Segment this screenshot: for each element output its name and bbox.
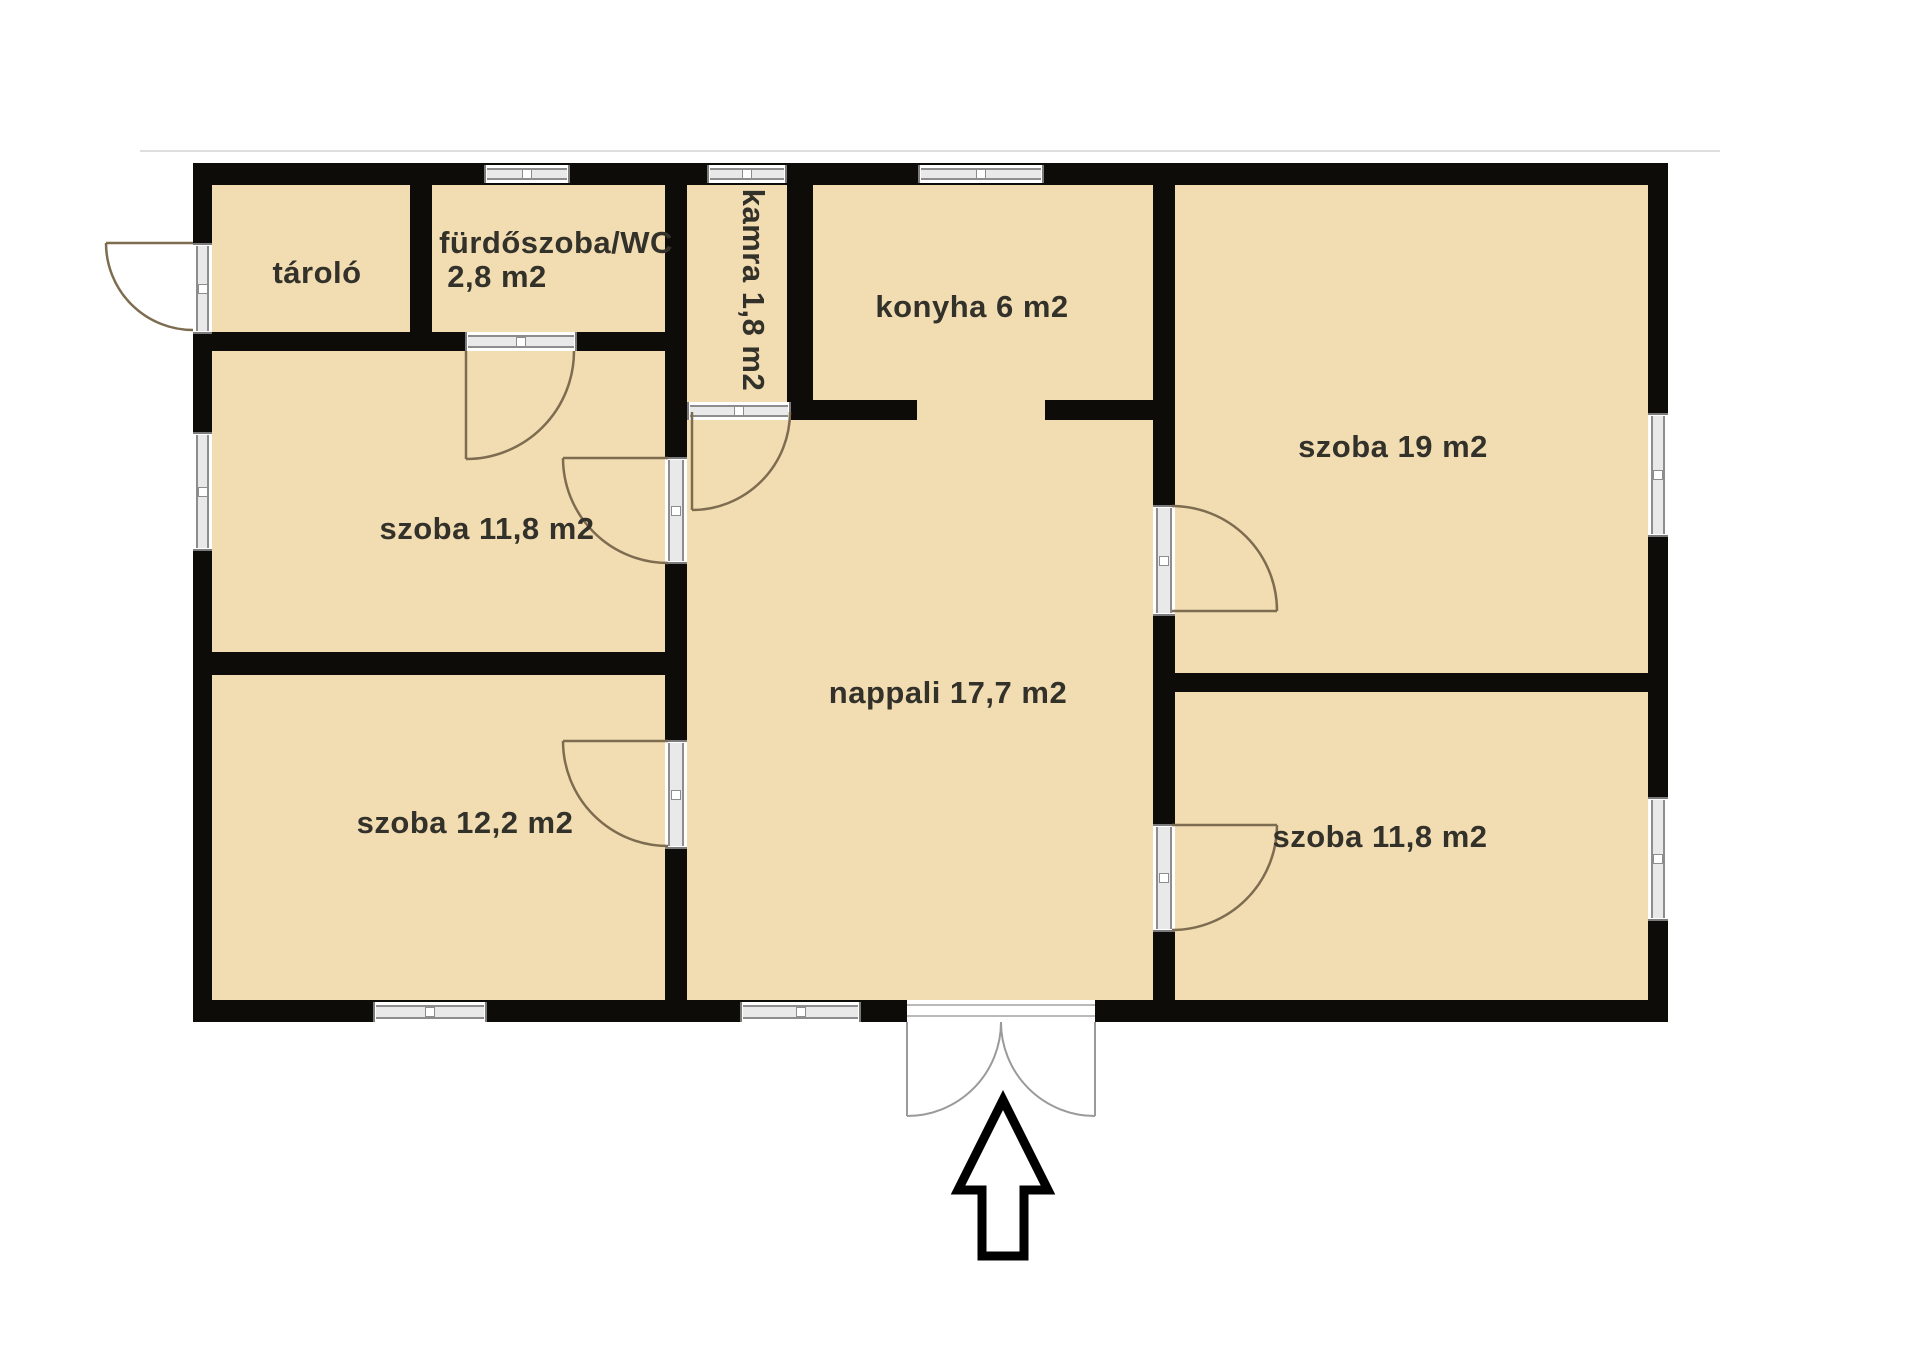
room-label-szoba19: szoba 19 m2 [1298, 429, 1488, 465]
room-label-tarolo: tároló [272, 255, 361, 291]
room-label-konyha: konyha 6 m2 [875, 289, 1068, 325]
room-label-kamra: kamra 1,8 m2 [735, 189, 771, 391]
room-label-nappali: nappali 17,7 m2 [829, 675, 1067, 711]
entrance-arrow-icon [958, 1100, 1048, 1256]
room-label-szoba118-right: szoba 11,8 m2 [1272, 819, 1487, 855]
floor-plan-canvas: tároló fürdőszoba/WC 2,8 m2 kamra 1,8 m2… [0, 0, 1920, 1357]
room-label-szoba122: szoba 12,2 m2 [357, 805, 574, 841]
room-label-furdoszoba: fürdőszoba/WC [439, 225, 673, 261]
room-label-furdoszoba-area: 2,8 m2 [447, 259, 547, 295]
room-label-szoba118-left: szoba 11,8 m2 [379, 511, 594, 547]
